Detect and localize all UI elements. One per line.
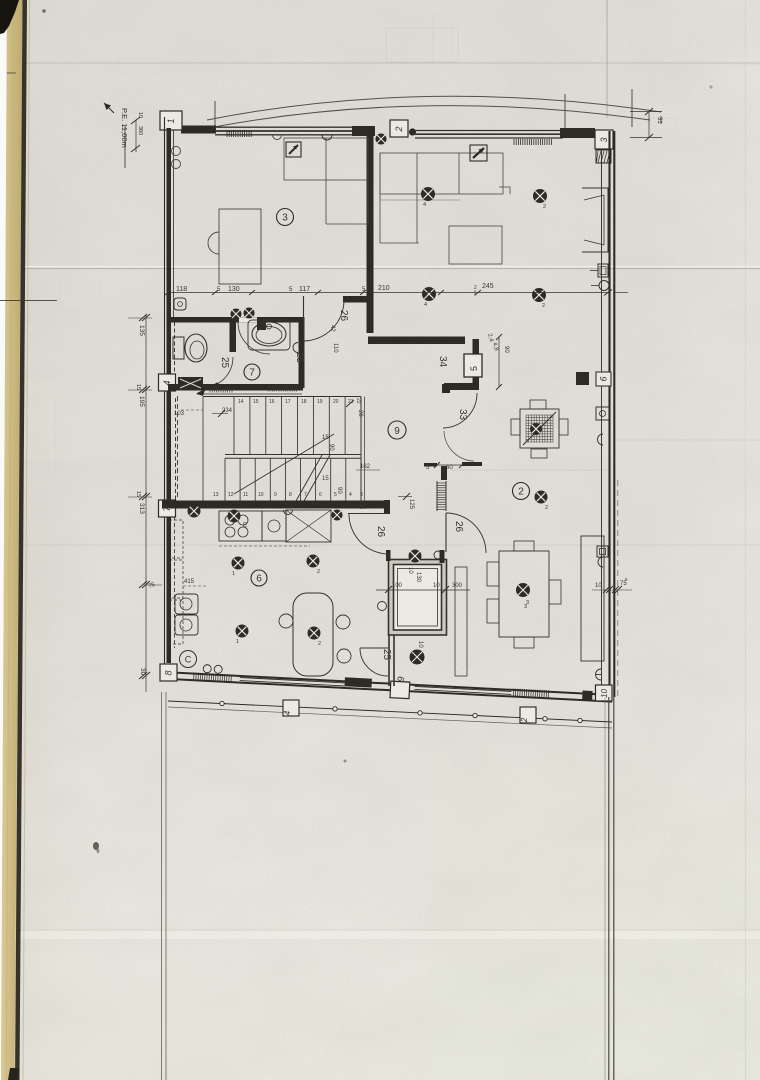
svg-text:135: 135 (138, 325, 145, 336)
svg-text:15: 15 (135, 384, 141, 390)
svg-text:P.E. 11,00m: P.E. 11,00m (120, 108, 129, 148)
svg-text:4: 4 (162, 380, 172, 385)
svg-text:E: E (243, 523, 247, 529)
svg-text:22: 22 (355, 398, 361, 404)
svg-text:2: 2 (543, 204, 546, 210)
svg-text:4: 4 (423, 202, 426, 208)
svg-text:16: 16 (269, 399, 275, 405)
svg-text:234: 234 (222, 408, 233, 414)
svg-text:90: 90 (328, 444, 334, 451)
svg-text:6: 6 (256, 574, 262, 585)
svg-text:1: 1 (232, 571, 235, 577)
svg-text:14: 14 (238, 399, 244, 405)
svg-text:26: 26 (338, 310, 349, 322)
svg-text:2: 2 (545, 505, 548, 511)
svg-text:10: 10 (595, 583, 602, 589)
svg-text:1: 1 (236, 639, 239, 645)
svg-text:10: 10 (433, 583, 440, 589)
svg-text:2: 2 (474, 285, 477, 291)
svg-text:30: 30 (139, 668, 146, 676)
svg-text:8: 8 (289, 492, 292, 498)
svg-text:210: 210 (378, 285, 390, 292)
svg-text:4: 4 (349, 492, 352, 498)
svg-text:4: 4 (283, 710, 292, 715)
svg-text:110: 110 (332, 343, 338, 353)
svg-text:2: 2 (518, 487, 524, 498)
svg-text:100: 100 (392, 583, 403, 589)
svg-text:18: 18 (301, 399, 307, 405)
svg-text:9: 9 (394, 426, 400, 437)
svg-text:10: 10 (407, 567, 413, 574)
svg-text:360: 360 (137, 126, 143, 135)
svg-text:7: 7 (249, 368, 255, 379)
svg-text:3: 3 (360, 492, 363, 498)
svg-text:117: 117 (299, 286, 310, 293)
svg-text:15: 15 (135, 491, 141, 497)
svg-text:15: 15 (322, 476, 329, 482)
svg-text:25: 25 (381, 649, 392, 661)
svg-text:7: 7 (304, 492, 307, 498)
svg-text:10: 10 (137, 112, 143, 118)
svg-text:19: 19 (317, 399, 323, 405)
svg-text:90: 90 (503, 346, 509, 353)
svg-text:4: 4 (424, 302, 427, 308)
svg-text:10: 10 (417, 641, 423, 648)
svg-text:20: 20 (333, 399, 339, 405)
svg-text:60: 60 (446, 465, 453, 471)
svg-text:3: 3 (524, 604, 527, 610)
svg-text:130: 130 (415, 572, 421, 583)
svg-text:5: 5 (334, 492, 337, 498)
svg-text:3: 3 (282, 213, 288, 224)
svg-text:31: 31 (656, 117, 662, 124)
svg-text:26: 26 (375, 526, 386, 538)
svg-text:9: 9 (274, 492, 277, 498)
svg-text:42: 42 (329, 325, 335, 332)
svg-text:2: 2 (318, 641, 321, 647)
svg-text:300: 300 (452, 583, 463, 589)
svg-text:15: 15 (322, 435, 329, 441)
svg-text:103: 103 (174, 411, 185, 417)
svg-text:245: 245 (482, 283, 494, 290)
svg-text:15: 15 (253, 399, 259, 405)
svg-text:17: 17 (285, 399, 291, 405)
svg-text:130: 130 (228, 286, 240, 293)
svg-text:118: 118 (176, 286, 187, 293)
svg-text:2: 2 (317, 569, 320, 575)
svg-text:2: 2 (520, 717, 529, 723)
svg-text:8: 8 (164, 670, 174, 675)
svg-text:5: 5 (469, 366, 479, 371)
svg-text:12: 12 (228, 492, 234, 498)
svg-text:26: 26 (453, 521, 464, 533)
svg-text:33: 33 (457, 409, 468, 421)
svg-text:25: 25 (294, 352, 305, 364)
svg-text:9: 9 (396, 676, 406, 681)
svg-text:2: 2 (542, 303, 545, 309)
svg-text:313: 313 (138, 503, 145, 514)
svg-text:21: 21 (348, 399, 354, 405)
svg-text:125: 125 (408, 499, 414, 510)
svg-text:10: 10 (258, 492, 264, 498)
svg-text:415: 415 (184, 579, 195, 585)
svg-text:2: 2 (394, 126, 404, 132)
svg-text:1: 1 (166, 118, 176, 123)
svg-text:11: 11 (243, 492, 248, 498)
svg-text:6: 6 (599, 376, 609, 381)
svg-text:90: 90 (336, 487, 342, 494)
svg-text:26: 26 (357, 410, 363, 417)
svg-text:3: 3 (599, 137, 609, 142)
svg-text:6: 6 (319, 492, 322, 498)
svg-text:34: 34 (437, 356, 448, 368)
svg-text:162: 162 (360, 464, 371, 470)
svg-text:10: 10 (600, 689, 609, 698)
svg-text:13: 13 (213, 492, 219, 498)
svg-text:25: 25 (219, 357, 230, 369)
svg-text:195: 195 (138, 396, 145, 407)
svg-text:C: C (185, 655, 192, 665)
